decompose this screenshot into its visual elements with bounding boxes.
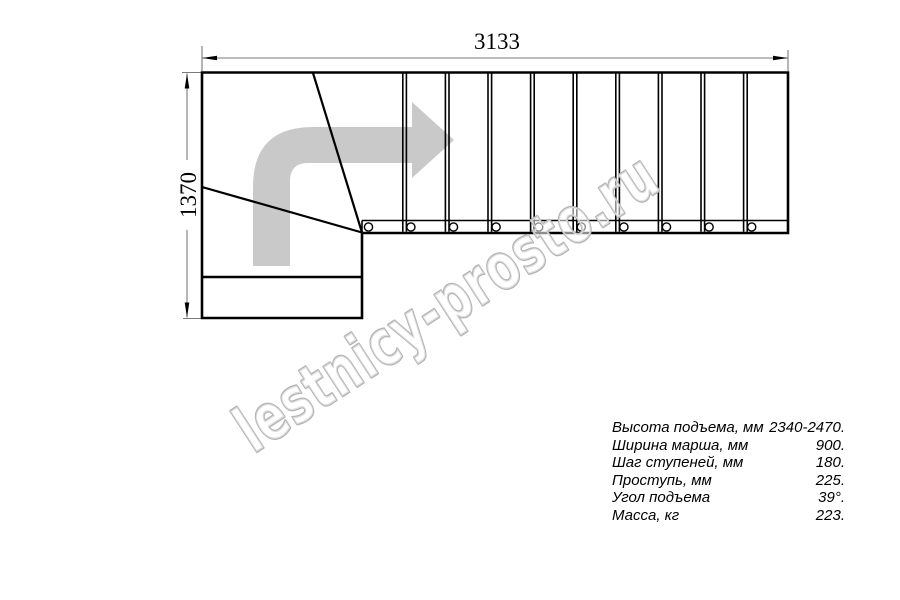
- spec-value: 225.: [816, 472, 845, 490]
- spec-value: 223.: [816, 507, 845, 525]
- spec-row: Высота подъема, мм 2340-2470.: [612, 419, 845, 437]
- spec-label: Высота подъема, мм: [612, 419, 764, 437]
- baluster-circle: [748, 223, 756, 231]
- spec-label: Ширина марша, мм: [612, 437, 748, 455]
- tread-separator: [744, 73, 748, 232]
- direction-arrow: [253, 102, 454, 266]
- spec-value: 39°.: [818, 489, 845, 507]
- spec-label: Масса, кг: [612, 507, 679, 525]
- spec-row: Масса, кг 223.: [612, 507, 845, 525]
- dimension-left-label: 1370: [178, 160, 200, 230]
- spec-value: 900.: [816, 437, 845, 455]
- baluster-circle: [662, 223, 670, 231]
- dimension-arrowhead-up: [185, 74, 190, 89]
- spec-row: Угол подъема 39°.: [612, 489, 845, 507]
- spec-value: 180.: [816, 454, 845, 472]
- spec-value: 2340-2470.: [769, 419, 845, 437]
- dimension-arrowhead-right: [773, 56, 788, 61]
- spec-row: Ширина марша, мм 900.: [612, 437, 845, 455]
- tread-separator: [701, 73, 705, 232]
- baluster-circle: [705, 223, 713, 231]
- spec-label: Шаг ступеней, мм: [612, 454, 743, 472]
- baluster-circle: [449, 223, 457, 231]
- dimension-arrowhead-down: [185, 303, 190, 318]
- top-dimension-line: [202, 56, 788, 61]
- dimension-top-label: 3133: [447, 31, 547, 53]
- tread-separator: [488, 73, 492, 232]
- specs-table: Высота подъема, мм 2340-2470. Ширина мар…: [612, 419, 845, 524]
- tread-separator: [445, 73, 449, 232]
- dimension-arrowhead-left: [202, 56, 217, 61]
- baluster-circle: [364, 223, 372, 231]
- baluster-circle: [407, 223, 415, 231]
- spec-label: Проступь, мм: [612, 472, 712, 490]
- staircase-drawing-page: lestnicy-prosto.ru 3133 1370 Высота подъ…: [0, 0, 900, 600]
- spec-label: Угол подъема: [612, 489, 710, 507]
- spec-row: Проступь, мм 225.: [612, 472, 845, 490]
- spec-row: Шаг ступеней, мм 180.: [612, 454, 845, 472]
